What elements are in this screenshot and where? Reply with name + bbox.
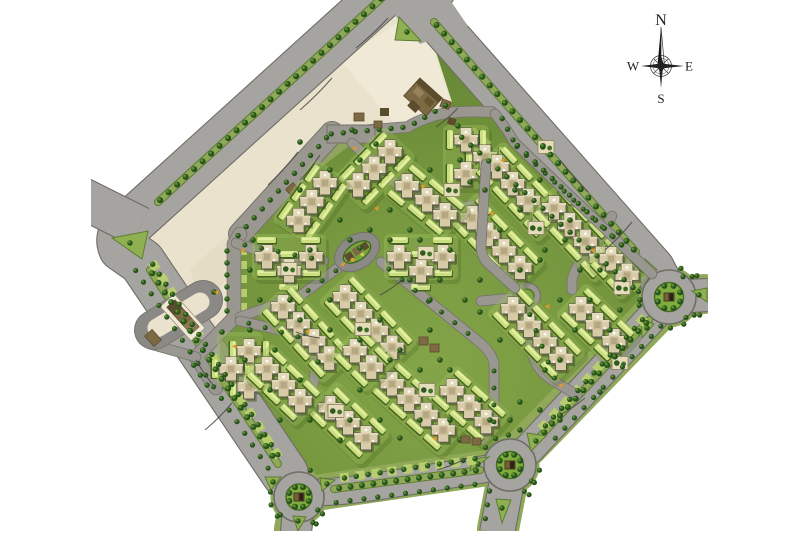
svg-text:N: N [655, 12, 667, 29]
svg-text:W: W [627, 59, 640, 74]
svg-text:E: E [685, 59, 693, 74]
svg-text:S: S [657, 91, 664, 106]
